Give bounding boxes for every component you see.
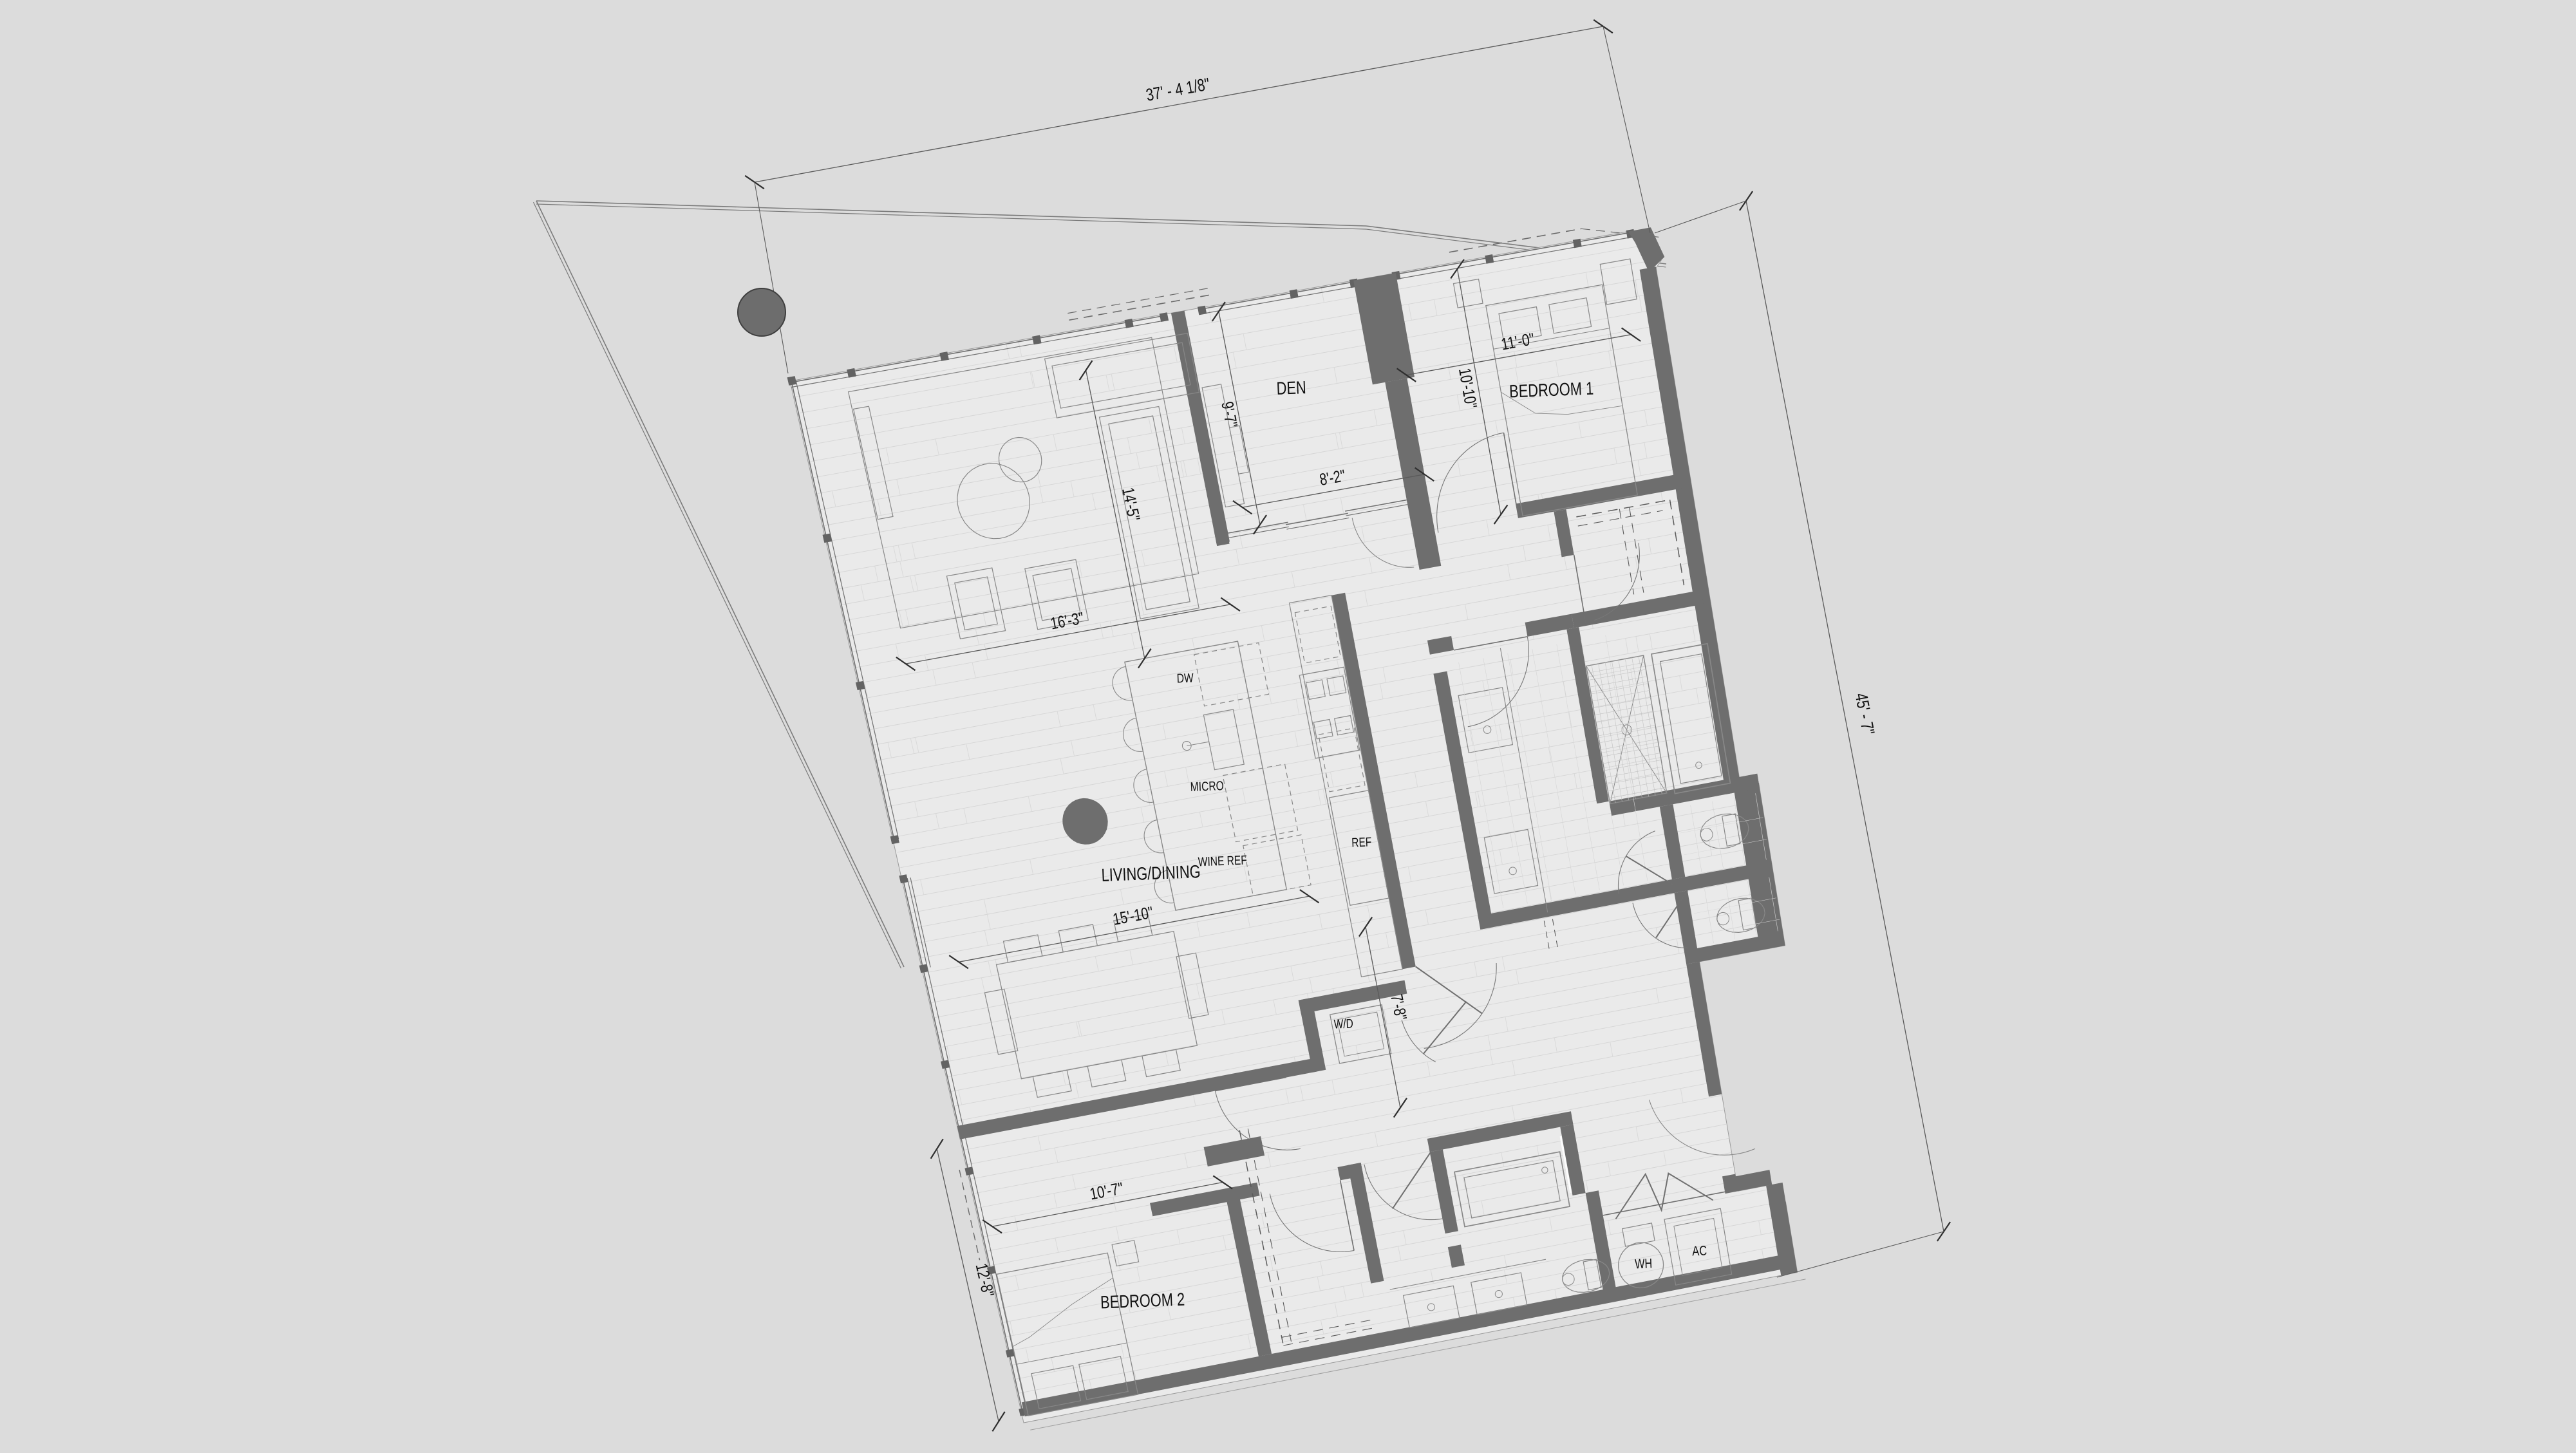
svg-text:LIVING/DINING: LIVING/DINING xyxy=(1101,861,1201,885)
svg-text:MICRO: MICRO xyxy=(1190,779,1224,794)
svg-text:DEN: DEN xyxy=(1276,377,1306,398)
svg-text:WINE REF: WINE REF xyxy=(1198,854,1247,870)
svg-text:W/D: W/D xyxy=(1333,1017,1353,1031)
svg-text:BEDROOM 1: BEDROOM 1 xyxy=(1509,379,1594,402)
svg-text:REF: REF xyxy=(1351,835,1372,850)
svg-text:WH: WH xyxy=(1635,1256,1653,1271)
svg-text:DW: DW xyxy=(1176,671,1194,686)
svg-text:BEDROOM 2: BEDROOM 2 xyxy=(1100,1289,1185,1313)
svg-text:AC: AC xyxy=(1692,1244,1707,1259)
